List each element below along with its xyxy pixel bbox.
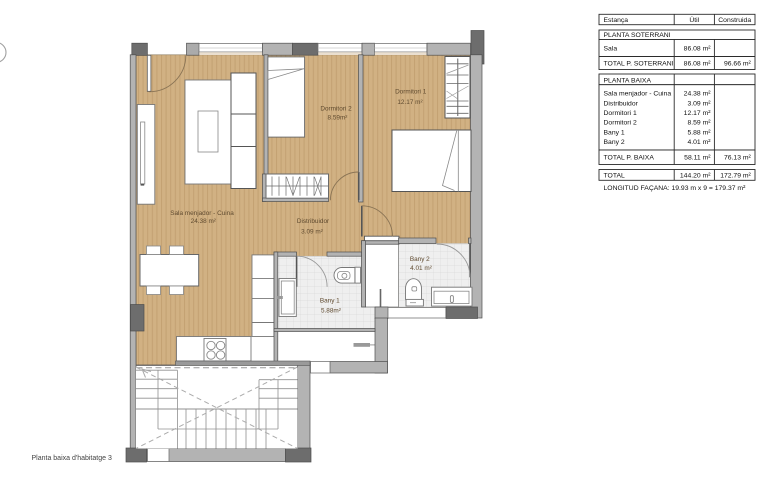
svg-text:Dormitori 2: Dormitori 2 [604,120,637,127]
svg-text:172.79 m²: 172.79 m² [720,172,751,179]
svg-text:Bany 1: Bany 1 [320,298,340,305]
svg-text:8.59 m²: 8.59 m² [687,120,711,127]
svg-text:TOTAL P. BAIXA: TOTAL P. BAIXA [604,155,655,162]
svg-text:12.17 m²: 12.17 m² [397,99,422,106]
svg-text:3.09 m²: 3.09 m² [301,228,323,235]
svg-text:Distribuidor: Distribuidor [604,100,639,107]
svg-text:Bany 2: Bany 2 [410,256,430,263]
svg-text:Sala menjador - Cuina: Sala menjador - Cuina [604,91,672,98]
svg-text:TOTAL P. SOTERRANI: TOTAL P. SOTERRANI [604,61,674,68]
svg-text:12.17 m²: 12.17 m² [684,110,712,117]
svg-text:144.20 m²: 144.20 m² [680,172,711,179]
svg-text:LONGITUD FAÇANA: 19.93 m x 9 =: LONGITUD FAÇANA: 19.93 m x 9 = 179.37 m² [604,185,747,192]
svg-text:24.38 m²: 24.38 m² [191,218,216,225]
svg-text:Planta baixa d'habitatge 3: Planta baixa d'habitatge 3 [32,455,112,462]
svg-text:Sala menjador - Cuina: Sala menjador - Cuina [170,210,234,217]
svg-text:76.13 m²: 76.13 m² [724,155,752,162]
svg-text:Bany 1: Bany 1 [604,129,625,136]
svg-text:Dormitori 2: Dormitori 2 [320,106,352,113]
svg-text:96.66 m²: 96.66 m² [724,61,752,68]
svg-text:4.01 m²: 4.01 m² [687,139,711,146]
svg-text:Bany 2: Bany 2 [604,139,625,146]
svg-text:Distribuidor: Distribuidor [297,218,330,225]
svg-text:Construida: Construida [718,17,751,24]
svg-text:Dormitori 1: Dormitori 1 [395,88,427,95]
svg-text:3.09 m²: 3.09 m² [687,100,711,107]
svg-text:5.88 m²: 5.88 m² [687,129,711,136]
svg-text:Estança: Estança [604,17,629,24]
svg-text:8.59m²: 8.59m² [328,115,348,122]
svg-text:PLANTA SOTERRANI: PLANTA SOTERRANI [604,32,671,39]
svg-text:58.11 m²: 58.11 m² [684,155,711,162]
svg-text:24.38 m²: 24.38 m² [684,91,712,98]
svg-text:Sala: Sala [604,46,618,53]
svg-text:86.08 m²: 86.08 m² [684,61,712,68]
svg-text:5.88m²: 5.88m² [321,307,341,314]
svg-text:86.08 m²: 86.08 m² [684,46,712,53]
svg-text:TOTAL: TOTAL [604,172,625,179]
svg-text:Dormitori 1: Dormitori 1 [604,110,637,117]
svg-text:PLANTA BAIXA: PLANTA BAIXA [604,77,652,84]
svg-text:4.01 m²: 4.01 m² [410,265,432,272]
svg-text:Útil: Útil [689,15,699,24]
